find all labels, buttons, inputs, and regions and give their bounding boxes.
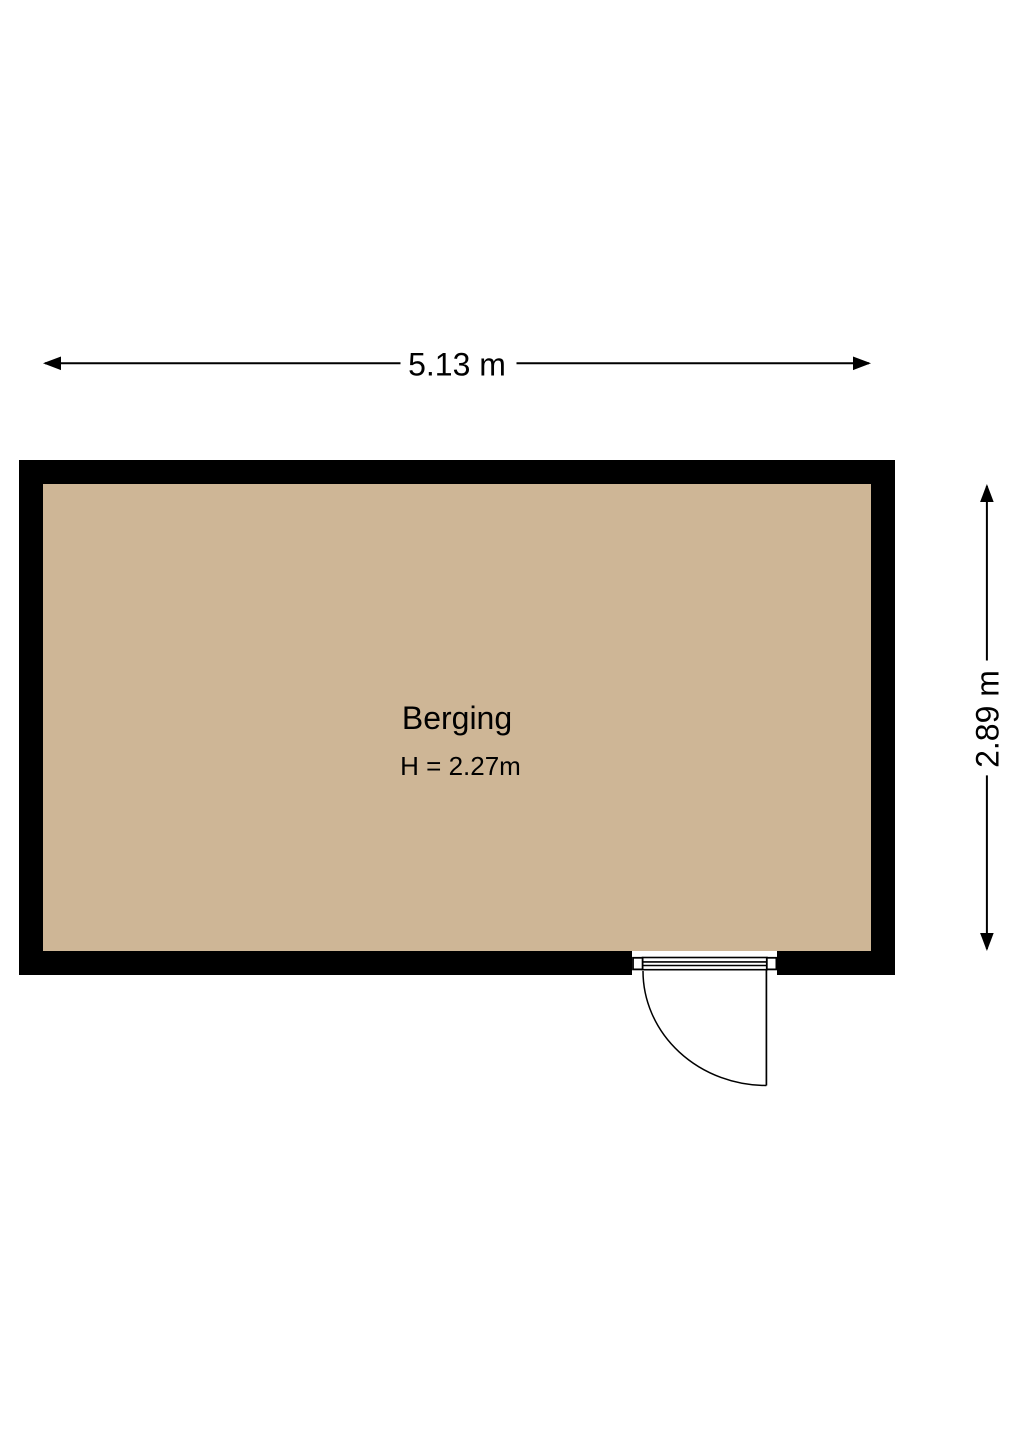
- svg-text:5.13 m: 5.13 m: [408, 346, 506, 382]
- svg-text:2.89 m: 2.89 m: [970, 670, 1006, 768]
- svg-text:H = 2.27m: H = 2.27m: [400, 751, 521, 781]
- svg-text:Berging: Berging: [402, 700, 512, 736]
